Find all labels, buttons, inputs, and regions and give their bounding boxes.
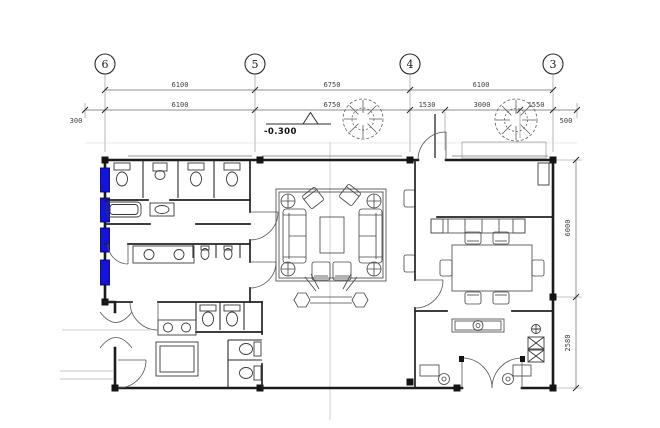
dim-2580-side: 2580 bbox=[564, 335, 572, 352]
dimension-right-side: 6000 2580 bbox=[556, 157, 582, 391]
elevation-value: -0.300 bbox=[264, 127, 297, 137]
potted-plant bbox=[439, 374, 514, 385]
coffee-table bbox=[320, 217, 344, 253]
dim-3000: 3000 bbox=[474, 101, 491, 109]
grid-label-3: 3 bbox=[550, 58, 557, 71]
door-swing bbox=[415, 132, 446, 308]
planter-circle bbox=[281, 194, 381, 276]
window-highlight-4 bbox=[101, 260, 110, 285]
double-vanity bbox=[133, 246, 194, 263]
wall-basin bbox=[153, 163, 167, 180]
dim-6000-side: 6000 bbox=[564, 220, 572, 237]
exterior-walls bbox=[105, 114, 553, 388]
sideboard bbox=[431, 219, 525, 233]
dim-300-edge: 300 bbox=[70, 117, 83, 125]
toilet-fixture bbox=[114, 163, 240, 186]
dim-1530: 1530 bbox=[419, 101, 436, 109]
round-mirror bbox=[473, 321, 483, 331]
elevation-triangle-icon bbox=[303, 113, 318, 125]
dimension-row-1: 6100 6750 6100 bbox=[102, 81, 556, 93]
dim-6100-c: 6100 bbox=[172, 101, 189, 109]
grid-label-5: 5 bbox=[252, 58, 259, 71]
bathtub bbox=[107, 202, 141, 217]
dim-1550: 1550 bbox=[528, 101, 545, 109]
tree-icon bbox=[343, 99, 383, 139]
elevation-marker: -0.300 bbox=[264, 113, 331, 138]
grid-label-4: 4 bbox=[407, 58, 414, 71]
dim-6750-a: 6750 bbox=[324, 81, 341, 89]
dim-500-edge: 500 bbox=[560, 117, 573, 125]
dim-6100-a: 6100 bbox=[172, 81, 189, 89]
console-table bbox=[294, 274, 368, 307]
dining-chair bbox=[440, 232, 544, 304]
dim-6100-b: 6100 bbox=[473, 81, 490, 89]
window-highlight-1 bbox=[101, 168, 110, 192]
floor-plan-svg: 6 5 4 3 6100 6750 6100 6100 6750 1530 30… bbox=[0, 0, 660, 428]
bench bbox=[420, 365, 531, 376]
double-vanity bbox=[158, 320, 196, 335]
lounge-area bbox=[276, 184, 415, 307]
door-swing bbox=[118, 302, 158, 388]
side-chair bbox=[312, 190, 415, 280]
grid-label-6: 6 bbox=[102, 58, 109, 71]
restrooms-lower bbox=[100, 302, 262, 388]
shaft-x-box bbox=[528, 325, 544, 363]
window-highlight-2 bbox=[101, 198, 110, 222]
sofa-left bbox=[283, 209, 306, 263]
dimension-row-2: 6100 6750 1530 3000 1550 300 500 bbox=[70, 101, 580, 150]
hall-console bbox=[452, 319, 504, 332]
dim-6750-b: 6750 bbox=[324, 101, 341, 109]
toilet-fixture bbox=[200, 305, 261, 380]
shower-enclosure bbox=[156, 342, 198, 376]
area-rug bbox=[276, 189, 386, 281]
sink-counter bbox=[150, 203, 174, 216]
sofa-right bbox=[359, 209, 382, 263]
armchair bbox=[302, 184, 361, 209]
dining-table bbox=[452, 245, 532, 291]
entry-cabinet bbox=[538, 163, 549, 185]
floor-plan-canvas: 6 5 4 3 6100 6750 6100 6100 6750 1530 30… bbox=[0, 0, 660, 428]
entrance-vestibule bbox=[420, 319, 544, 388]
restrooms-upper bbox=[105, 160, 278, 302]
